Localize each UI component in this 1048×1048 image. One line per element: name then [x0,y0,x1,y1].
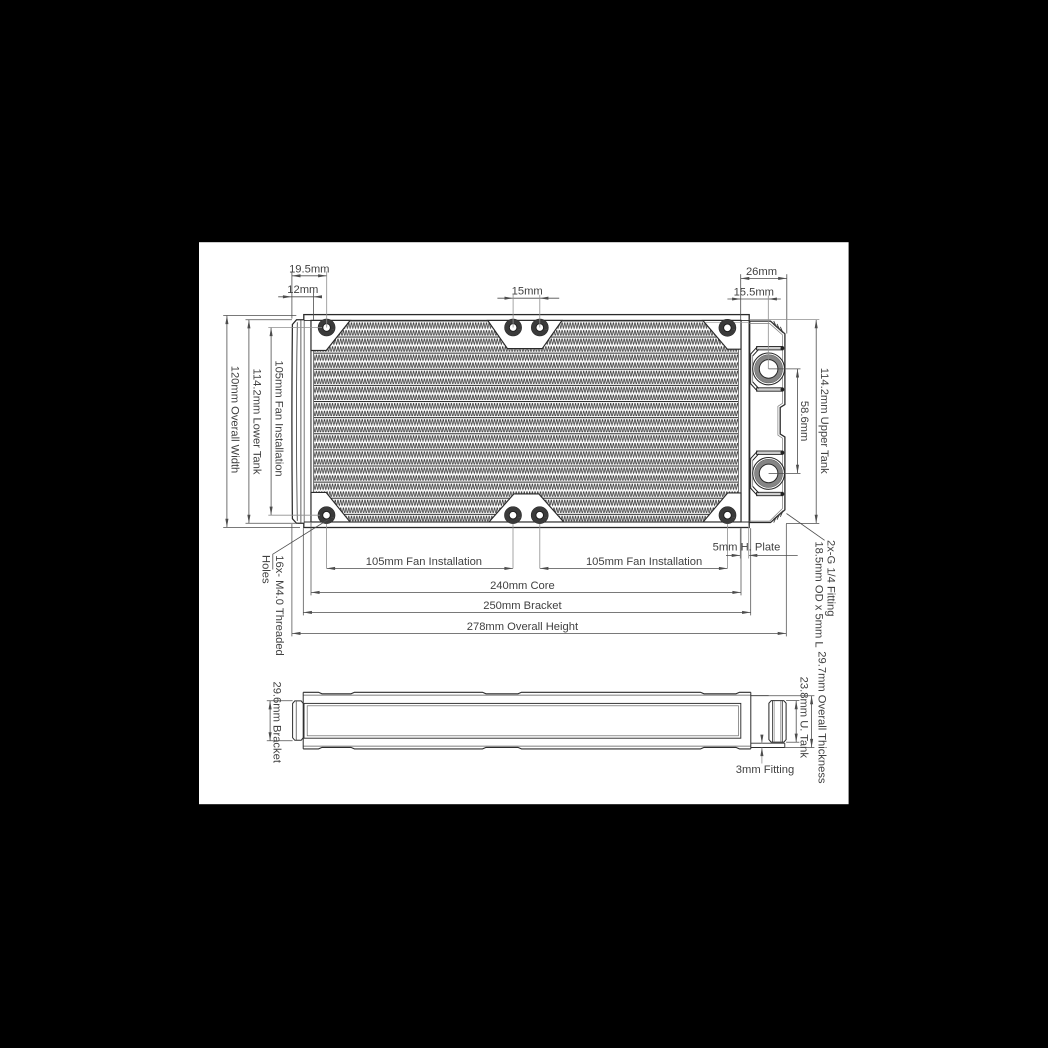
svg-text:240mm Core: 240mm Core [490,580,555,592]
svg-text:16x- M4.0 Threaded: 16x- M4.0 Threaded [273,555,285,656]
svg-text:3mm Fitting: 3mm Fitting [736,764,794,776]
svg-text:12mm: 12mm [287,284,318,296]
svg-text:250mm Bracket: 250mm Bracket [483,600,562,612]
svg-text:19.5mm: 19.5mm [289,263,329,275]
svg-text:Holes: Holes [260,555,272,584]
svg-text:278mm Overall Height: 278mm Overall Height [467,621,579,633]
svg-text:114.2mm Lower Tank: 114.2mm Lower Tank [250,369,262,475]
svg-text:23.8mm U. Tank: 23.8mm U. Tank [797,677,809,759]
svg-text:120mm Overall Width: 120mm Overall Width [229,366,241,474]
svg-text:58.6mm: 58.6mm [798,401,810,441]
svg-text:15mm: 15mm [512,286,543,298]
svg-text:2x-G 1/4 Fitting: 2x-G 1/4 Fitting [825,540,837,616]
svg-text:105mm Fan Installation: 105mm Fan Installation [366,556,482,568]
svg-text:5mm H. Plate: 5mm H. Plate [713,542,781,554]
svg-text:26mm: 26mm [746,266,777,278]
svg-text:15.5mm: 15.5mm [734,287,774,299]
svg-text:18.5mm OD x 5mm L: 18.5mm OD x 5mm L [813,541,825,647]
svg-text:29.7mm Overall Thickness: 29.7mm Overall Thickness [815,651,827,784]
svg-text:105mm Fan Installation: 105mm Fan Installation [273,360,285,476]
svg-text:114.2mm Upper Tank: 114.2mm Upper Tank [818,368,830,474]
svg-text:105mm Fan Installation: 105mm Fan Installation [586,556,702,568]
svg-text:29.6mm Bracket: 29.6mm Bracket [271,681,283,763]
